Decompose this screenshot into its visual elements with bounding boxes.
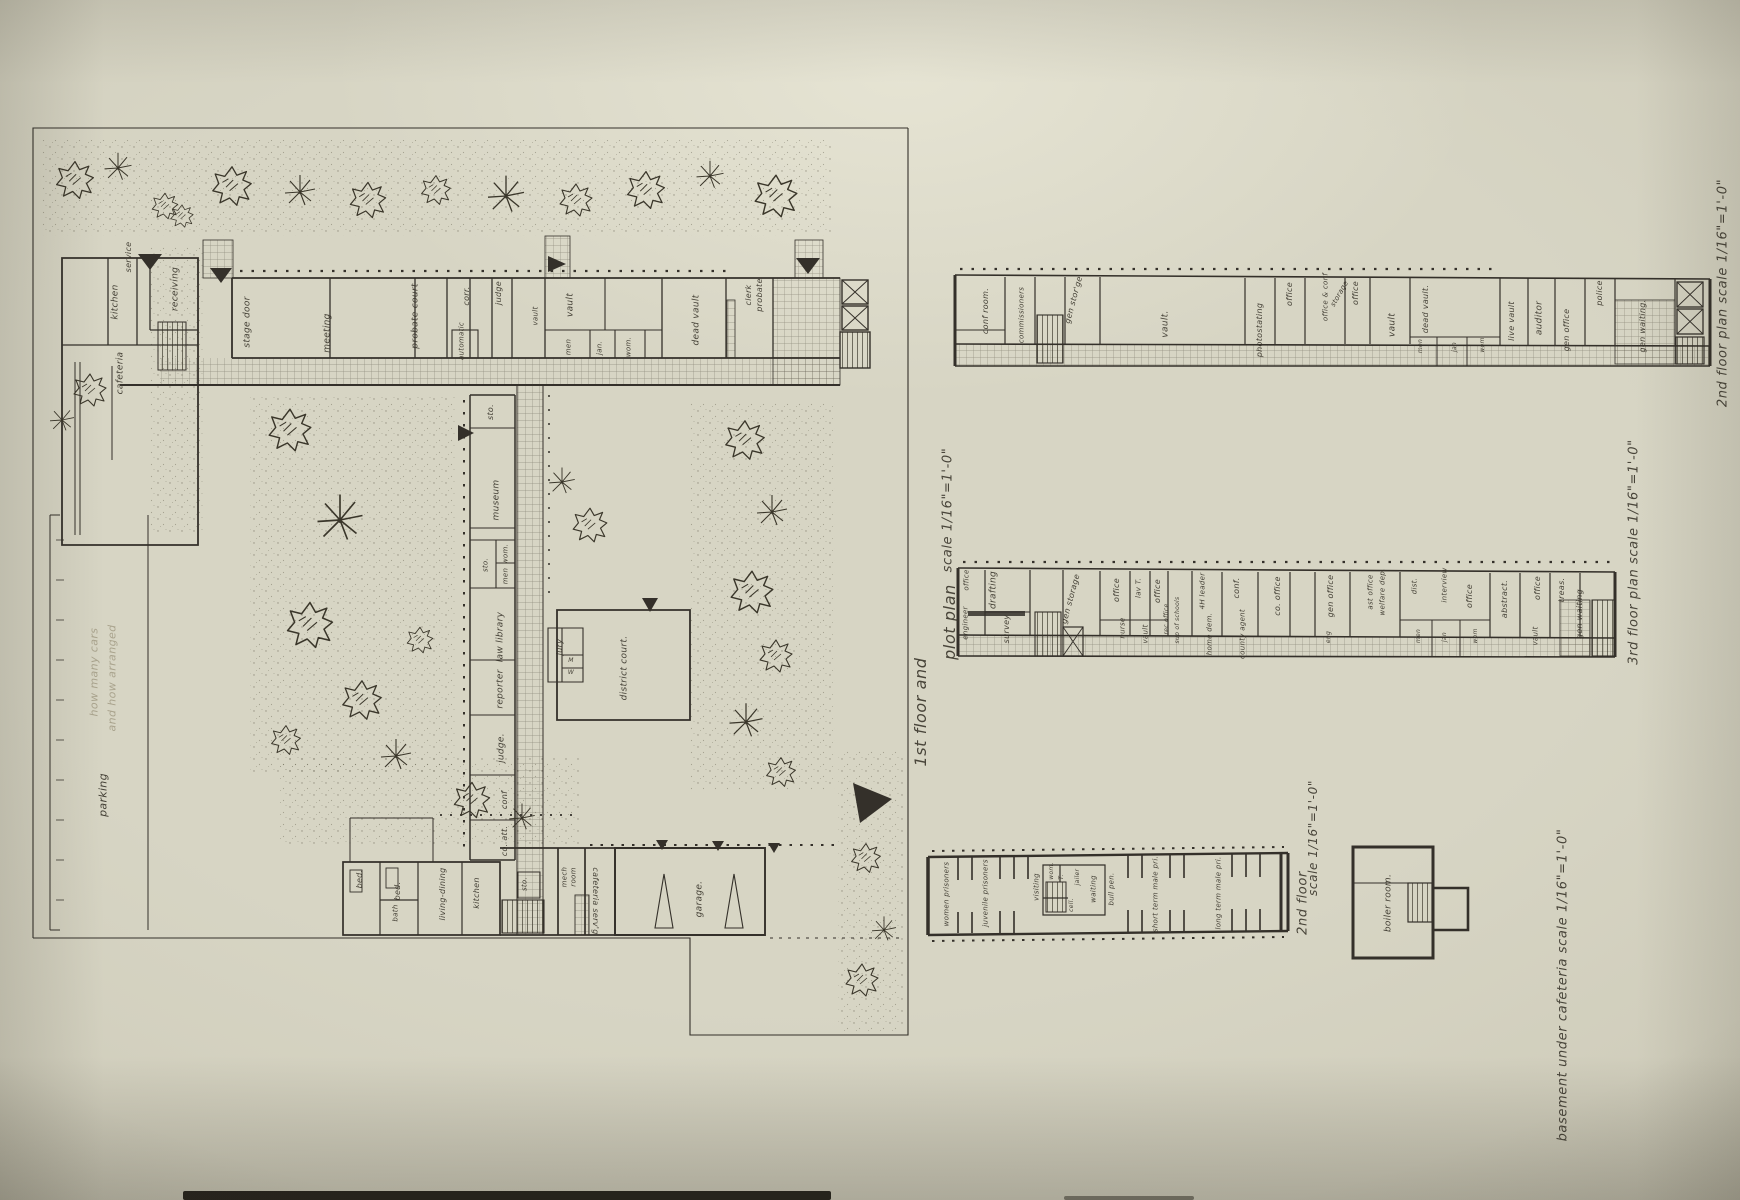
room-label: wom <box>1480 337 1486 352</box>
room-label: eng <box>1326 631 1332 643</box>
pencil-note: how many cars <box>89 628 100 717</box>
room-label: office <box>1352 281 1360 305</box>
room-label: men <box>566 339 573 355</box>
photograph-of-floor-plan-drawing: servicekitchenreceivingcafeteriastage do… <box>0 0 1740 1200</box>
room-label: short term male pri. <box>1153 856 1160 932</box>
room-label: museum <box>493 480 502 521</box>
room-label: office & conf <box>1323 273 1330 321</box>
room-label: W <box>568 670 574 676</box>
room-label: dead vault. <box>1422 285 1430 333</box>
room-label: long term male pri. <box>1216 856 1223 929</box>
room-label: receiving <box>172 267 181 311</box>
room-label: service <box>125 242 133 273</box>
room-label: men <box>1416 629 1422 643</box>
room-label: room <box>571 867 578 886</box>
room-label: clerk <box>745 285 753 306</box>
room-label: corr. <box>463 286 471 305</box>
room-label: district court. <box>621 636 630 701</box>
room-label: bed. <box>394 882 402 901</box>
room-label: jan. <box>597 341 604 355</box>
room-label: meeting <box>324 313 333 352</box>
room-label: wom. <box>1049 862 1055 880</box>
room-label: cafeteria serv'g <box>591 867 599 934</box>
room-label: automatic <box>459 322 466 360</box>
room-label: interview <box>1442 567 1449 602</box>
room-label: auditor <box>1536 301 1545 335</box>
room-label: bed. <box>356 870 364 889</box>
room-label: women prisoners <box>944 862 951 927</box>
room-label: nurse <box>1120 617 1127 638</box>
room-label: vault <box>1389 313 1398 337</box>
room-label: boiler room. <box>1385 874 1394 932</box>
room-label: jan <box>1452 342 1458 352</box>
room-label: vault <box>1533 626 1540 645</box>
room-label: reporter <box>497 669 506 708</box>
plan-caption: scale 1/16"=1'-0" <box>942 448 955 573</box>
room-label: home dem. <box>1207 613 1214 656</box>
room-label: commissioners <box>1019 287 1026 343</box>
room-label: dead vault <box>693 295 702 346</box>
room-label: parking <box>98 773 109 817</box>
room-label: sto. <box>487 404 495 420</box>
room-label: live vault <box>1508 301 1516 341</box>
room-label: abstract. <box>1501 580 1509 618</box>
room-label: office <box>1154 579 1162 603</box>
room-label: jury <box>556 639 564 656</box>
room-label: law library <box>497 612 506 663</box>
room-label: waiting <box>1091 875 1098 903</box>
room-label: ast office <box>1368 574 1375 609</box>
room-label: gen waiting <box>1576 589 1584 639</box>
room-label: engineer <box>963 606 970 639</box>
plan-caption: basement under cafeteria scale 1/16"=1'-… <box>1557 829 1570 1142</box>
room-label: welfare dep. <box>1380 568 1387 615</box>
room-label: office <box>964 569 971 590</box>
room-label: 4H leader <box>1200 573 1207 610</box>
room-label: bath <box>393 904 400 921</box>
room-label: gen stor'ge <box>1064 275 1084 324</box>
room-label: gen storage <box>1060 573 1081 625</box>
room-label: cell. <box>1069 898 1075 912</box>
room-label: sup of schools <box>1175 597 1181 644</box>
plan-caption: 3rd floor plan scale 1/16"=1'-0" <box>1628 439 1641 664</box>
room-label: gen office <box>1327 575 1335 618</box>
room-label: mech <box>562 867 569 888</box>
room-label: juvenile prisoners <box>983 859 990 927</box>
room-label: conf. <box>1233 577 1241 598</box>
room-label: men <box>1418 339 1424 353</box>
room-label: conf room. <box>982 288 990 334</box>
room-label: bull pen. <box>1109 872 1116 905</box>
room-label: wom. <box>503 544 510 564</box>
plan-caption: scale 1/16"=1'-0" <box>1307 780 1319 896</box>
room-label: vault <box>1143 624 1150 643</box>
room-label: office <box>1466 584 1474 608</box>
room-label: M <box>568 658 573 664</box>
plan-caption: 2nd floor plan scale 1/16"=1'-0" <box>1717 179 1730 407</box>
room-label: police <box>1596 280 1604 306</box>
room-label: jan <box>1442 632 1448 642</box>
room-label: kitchen <box>473 877 481 909</box>
room-label: probate court <box>412 283 421 348</box>
room-label: rec office <box>1164 604 1170 635</box>
room-label: lav T. <box>1136 578 1143 598</box>
room-label: gen office <box>1563 309 1571 352</box>
room-label: wom <box>1473 628 1479 643</box>
room-label: treas. <box>1558 578 1566 603</box>
label-overlay: servicekitchenreceivingcafeteriastage do… <box>0 0 1740 1200</box>
room-label: dist. <box>1412 578 1419 595</box>
room-label: office <box>1113 578 1121 602</box>
room-label: county agent <box>1240 609 1247 659</box>
room-label: storage <box>1330 280 1350 308</box>
room-label: survey <box>1003 615 1011 644</box>
room-label: office <box>1534 576 1542 600</box>
room-label: vault <box>567 293 576 317</box>
room-label: living-dining <box>439 867 447 920</box>
room-label: sto. <box>522 877 529 891</box>
room-label: co. office <box>1274 576 1282 615</box>
room-label: photostating <box>1256 303 1264 357</box>
room-label: visiting <box>1034 873 1041 901</box>
room-label: co. att. <box>501 826 509 857</box>
photo-edge-artifact <box>183 1191 831 1200</box>
room-label: conf <box>501 791 509 809</box>
plan-caption: 1st floor and <box>913 657 929 766</box>
room-label: garage. <box>696 881 705 918</box>
room-label: jailer <box>1075 869 1081 886</box>
photo-edge-artifact-small <box>1064 1196 1194 1200</box>
room-label: drafting <box>990 571 999 609</box>
room-label: vault. <box>1162 310 1171 337</box>
room-label: gen waiting. <box>1639 300 1647 353</box>
room-label: vault <box>533 306 540 325</box>
room-label: men <box>503 568 510 584</box>
room-label: cafeteria <box>117 352 126 395</box>
room-label: sto. <box>483 558 490 572</box>
plan-caption: plot plan <box>942 584 958 660</box>
room-label: stage door <box>244 296 253 347</box>
pencil-note: and how arranged <box>107 624 118 731</box>
room-label: T. <box>1059 874 1065 879</box>
room-label: office <box>1286 282 1294 306</box>
room-label: kitchen <box>112 284 121 319</box>
room-label: wom. <box>626 337 633 357</box>
room-label: judge. <box>498 733 507 763</box>
room-label: probate <box>756 278 764 311</box>
room-label: judge <box>495 281 503 305</box>
